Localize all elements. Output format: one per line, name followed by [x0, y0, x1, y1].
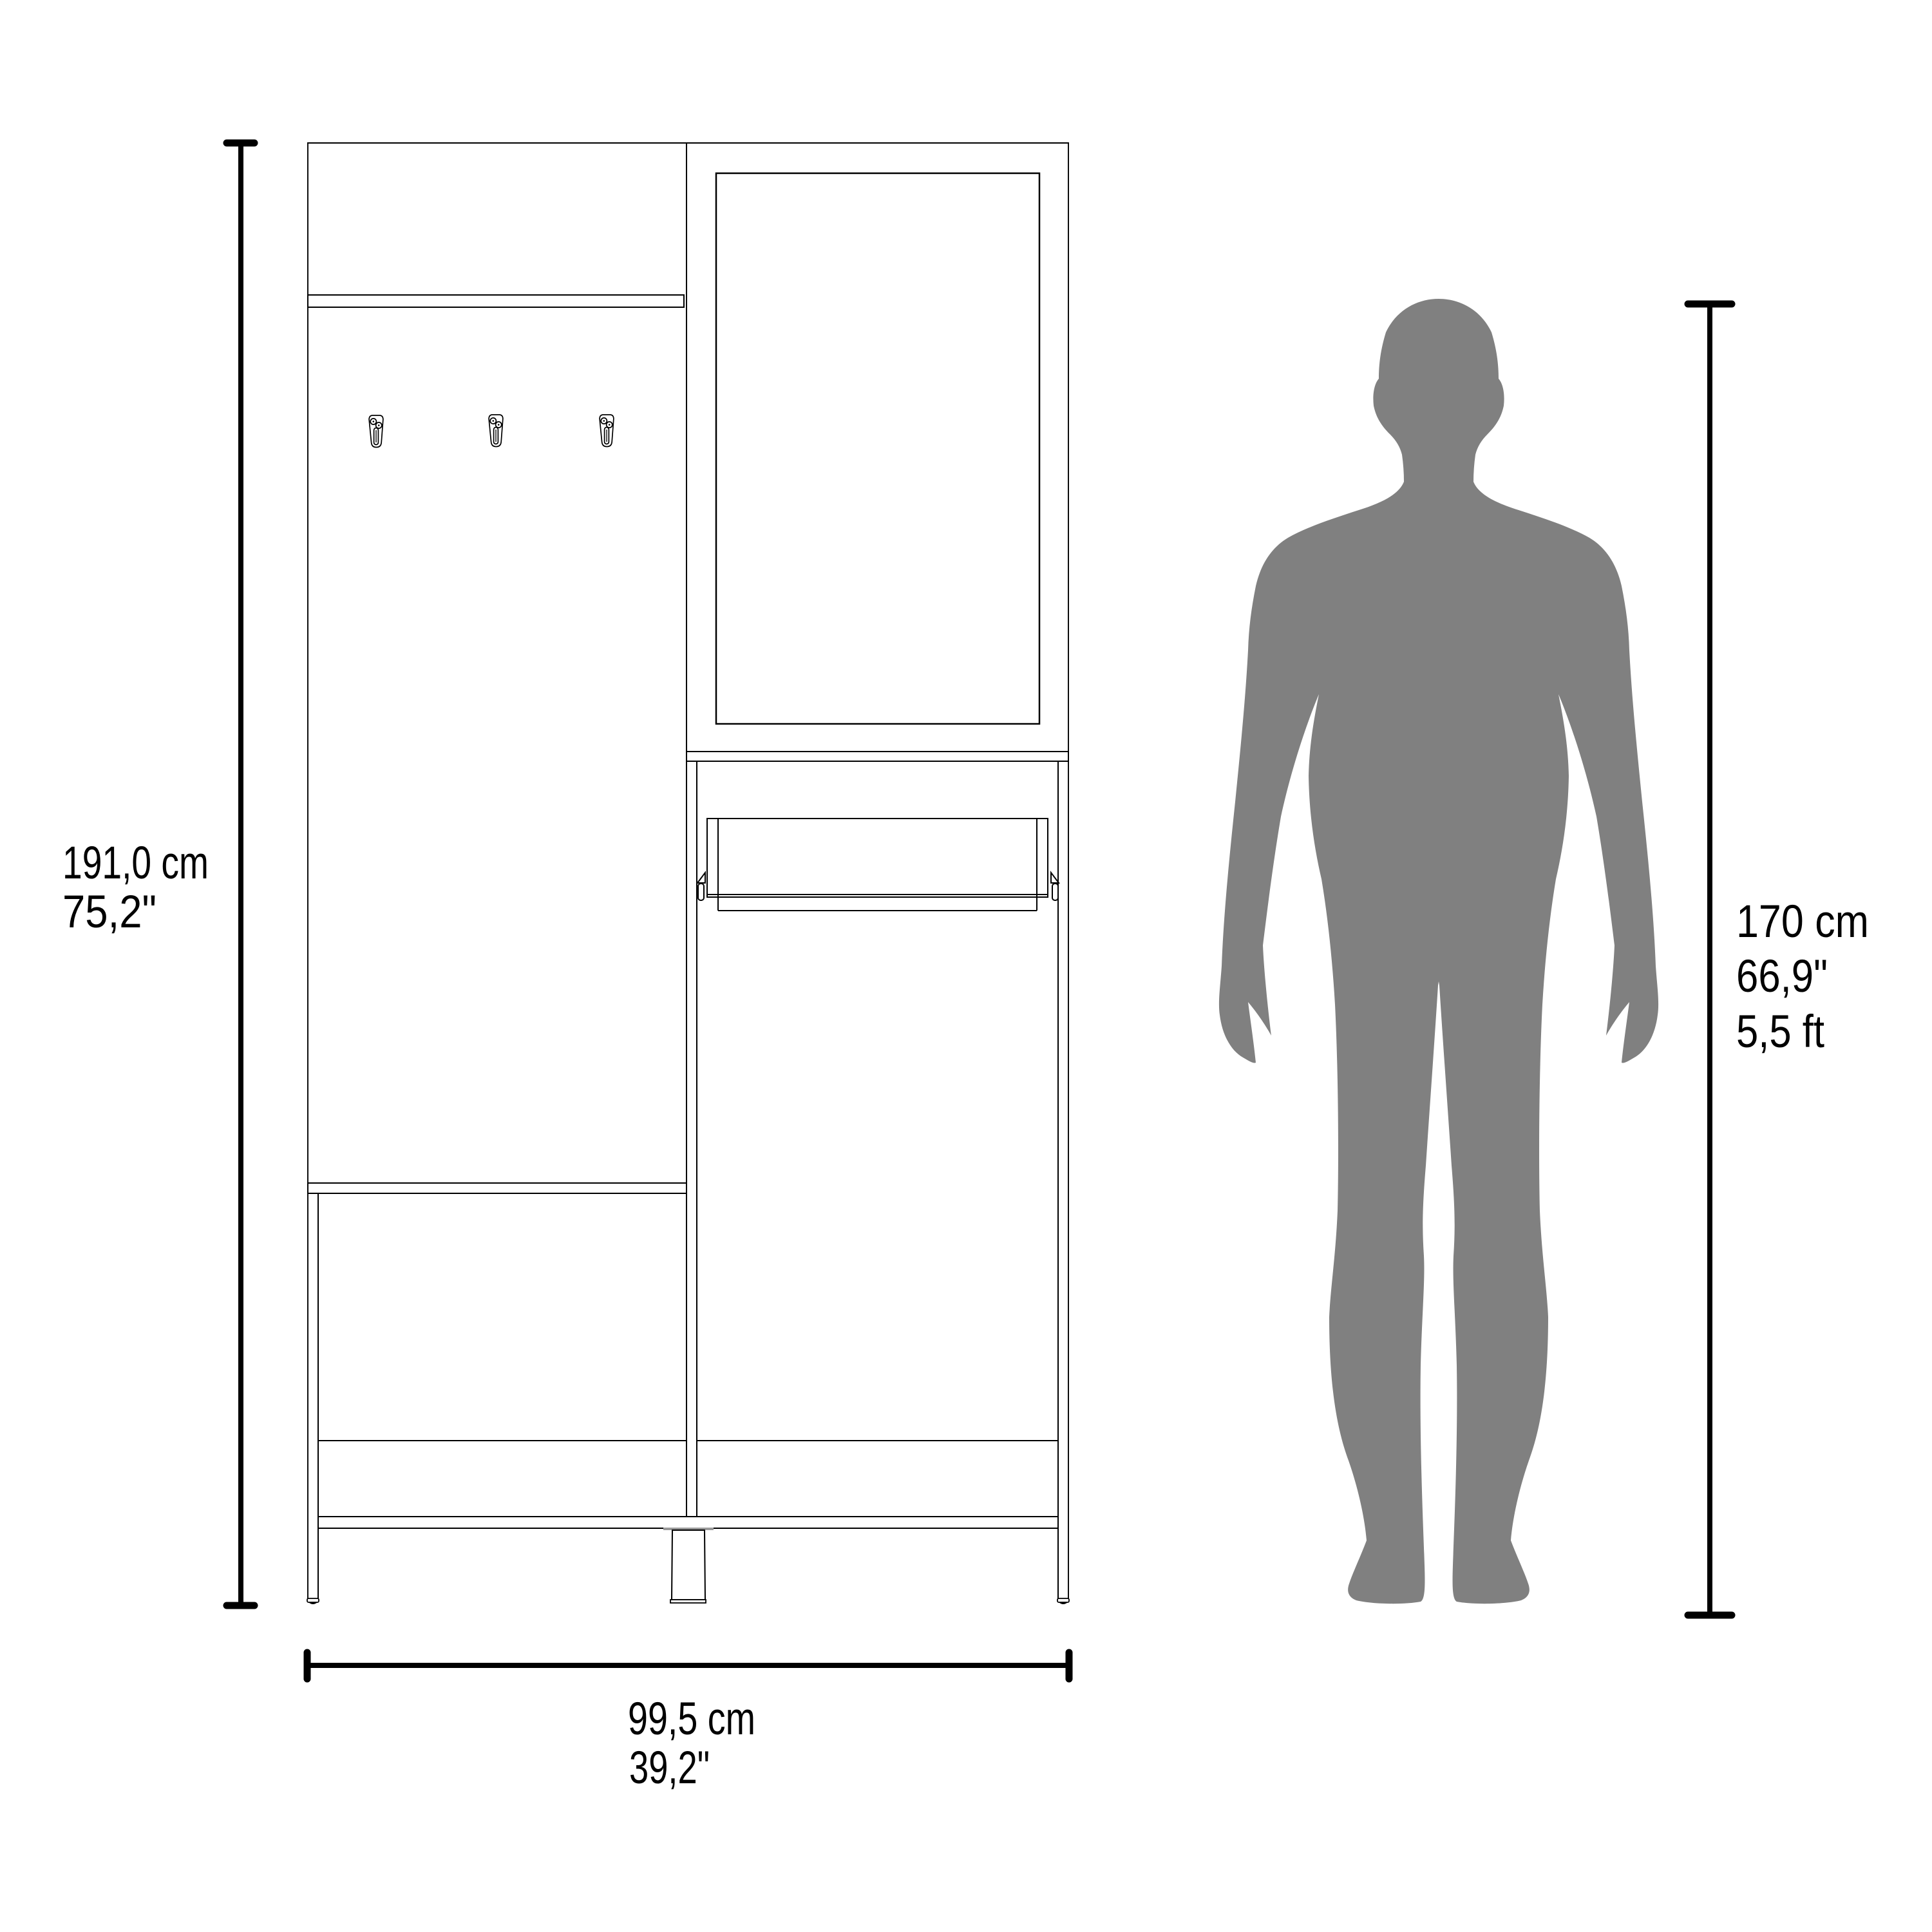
svg-text:5,5 ft: 5,5 ft — [1736, 1007, 1824, 1057]
svg-text:191,0 cm: 191,0 cm — [62, 838, 209, 889]
svg-text:170 cm: 170 cm — [1736, 896, 1869, 947]
svg-text:99,5 cm: 99,5 cm — [628, 1694, 755, 1745]
svg-text:66,9": 66,9" — [1736, 951, 1828, 1002]
svg-text:39,2": 39,2" — [629, 1743, 710, 1794]
svg-text:75,2": 75,2" — [62, 887, 156, 938]
